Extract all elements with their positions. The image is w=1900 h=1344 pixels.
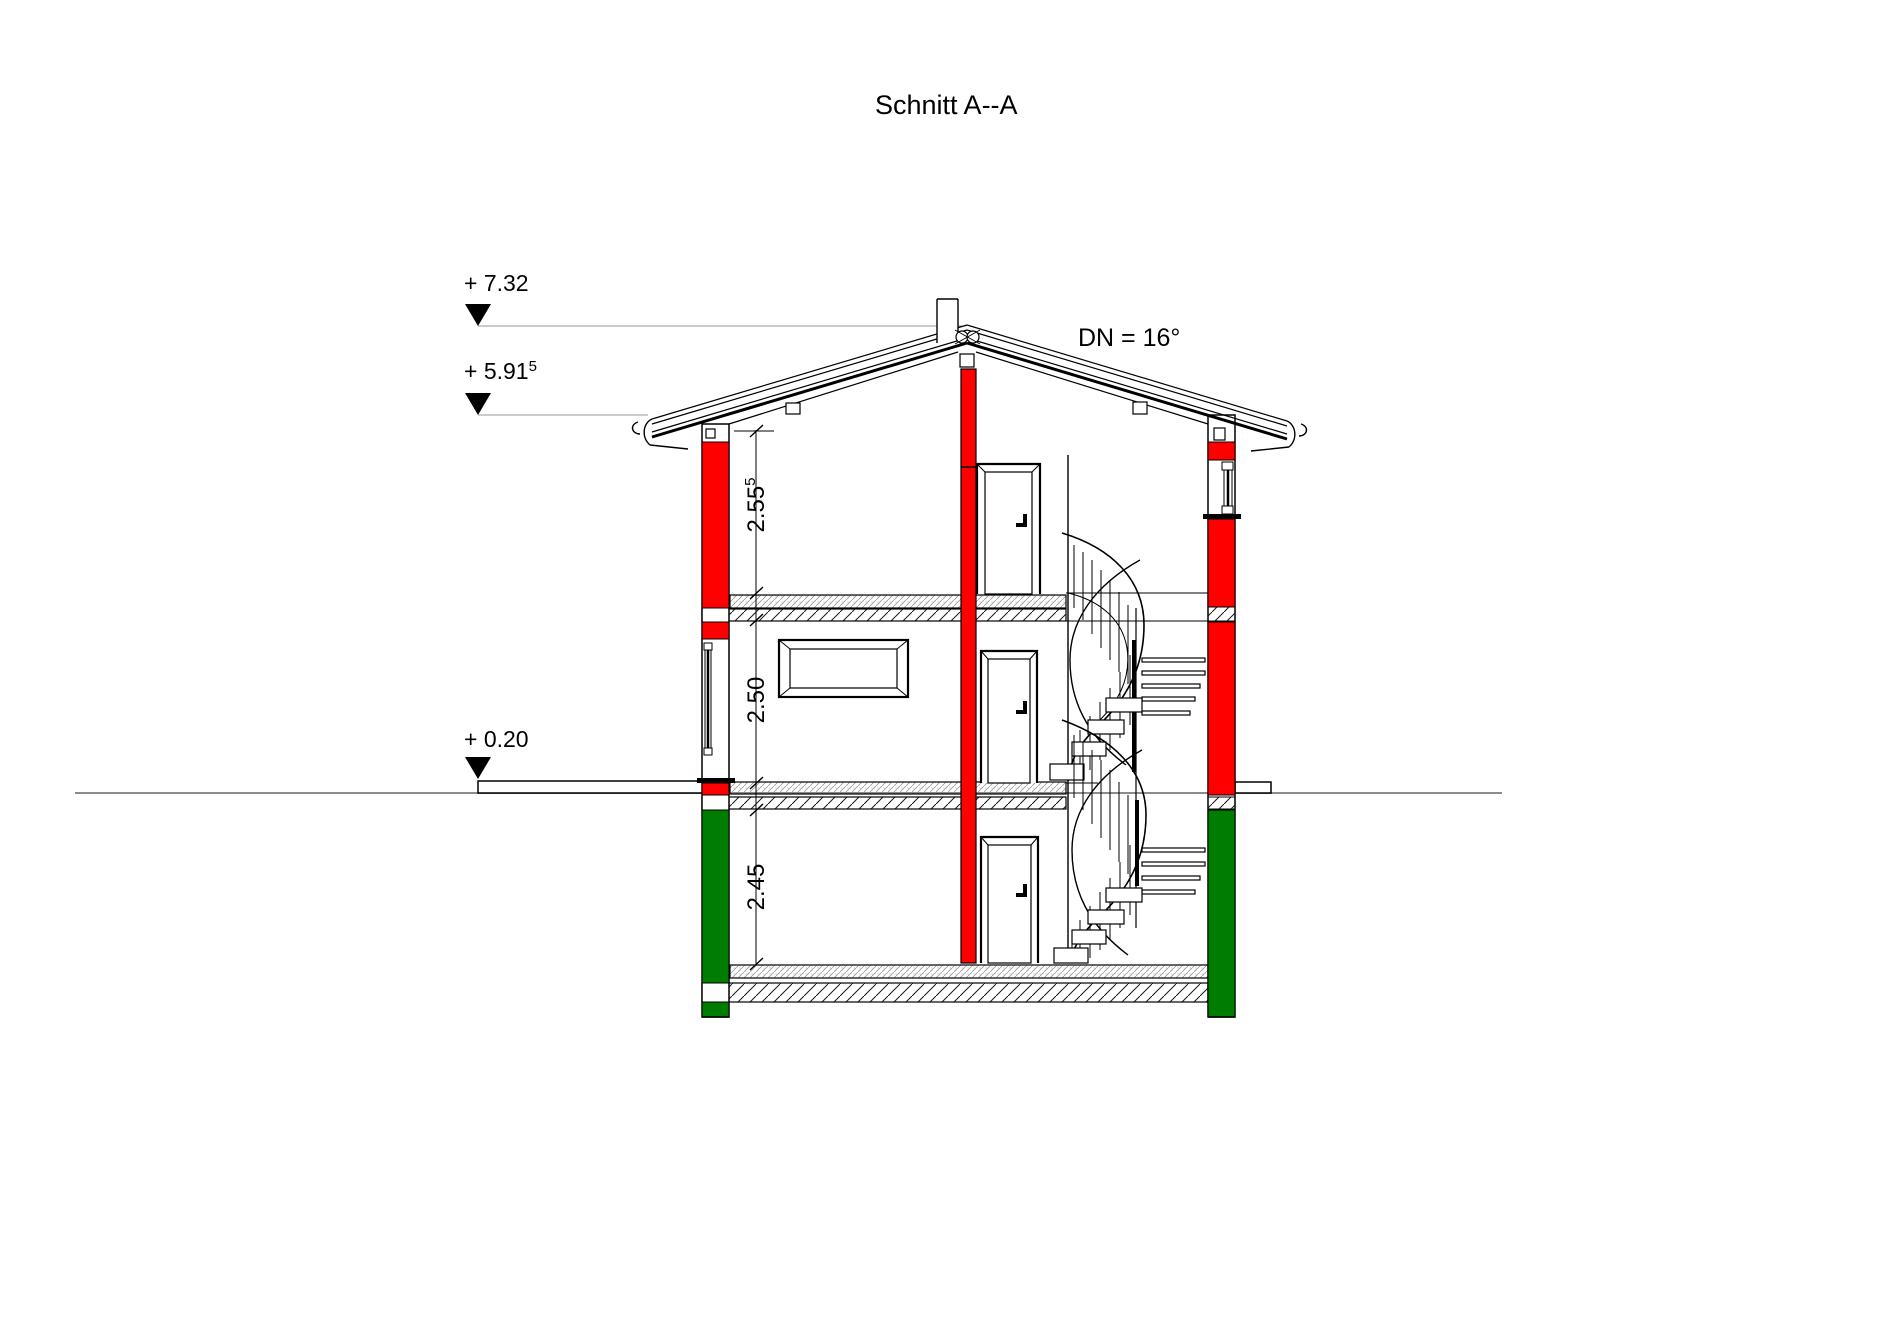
elevation-triangle-icon [465,304,491,326]
window-sill-bar [1203,514,1241,519]
ridge-post [960,354,974,367]
concrete-ground-floor [702,810,729,983]
middle-floor-window [779,640,908,697]
wall-plate [1214,428,1225,440]
elevation-marker-ground-floor: + 0.20 [464,726,529,779]
elevation-marker-eave: + 5.915 [464,358,537,415]
ground-floor-door [981,837,1038,963]
elevation-reference-lines [478,326,966,415]
svg-text:+ 5.915: + 5.915 [464,358,537,384]
base-slab [702,965,1208,1002]
elevation-marker-ridge: + 7.32 [464,270,529,326]
wall-plate [706,429,715,438]
section-drawing: Schnitt A--A + 7.32 + 5.915 + 0.20 DN = … [0,0,1900,1344]
svg-text:+ 0.20: + 0.20 [464,726,529,752]
window-sill-bar [697,778,735,783]
drawing-title: Schnitt A--A [875,90,1018,120]
masonry-attic [702,442,729,608]
masonry-attic-lower [1208,519,1235,607]
left-wall-window [704,643,712,755]
roof-pitch-label: DN = 16° [1078,324,1180,352]
purlin-left [786,403,800,414]
architectural-section-page: Schnitt A--A + 7.32 + 5.915 + 0.20 DN = … [0,0,1900,1344]
masonry-plinth [702,783,729,795]
chimney [937,299,958,343]
right-exterior-wall [1203,415,1241,1017]
masonry-attic-upper [1208,442,1235,460]
purlin-right [1133,402,1147,414]
masonry-parapet [702,622,729,639]
middle-floor-door [981,651,1037,783]
terrace-right [1235,782,1271,793]
dimension-attic-height: 2.555 [742,477,770,532]
spiral-staircase [1050,455,1205,963]
svg-text:+ 7.32: + 7.32 [464,270,529,296]
masonry-middle-floor [1208,622,1235,795]
dimension-middle-height: 2.50 [743,677,770,724]
left-exterior-wall [697,424,735,1017]
concrete-ground-floor [1208,810,1235,1017]
masonry-center [961,369,976,963]
center-wall [960,354,976,963]
attic-door [977,464,1040,594]
dimension-ground-height: 2.45 [743,864,770,911]
height-dimension-chain: 2.555 2.50 2.45 [734,425,774,970]
elevation-triangle-icon [465,757,491,779]
terrace-left [478,781,703,793]
attic-floor-slab [702,593,1208,621]
elevation-triangle-icon [465,393,491,415]
left-foundation-stub [702,1002,729,1017]
